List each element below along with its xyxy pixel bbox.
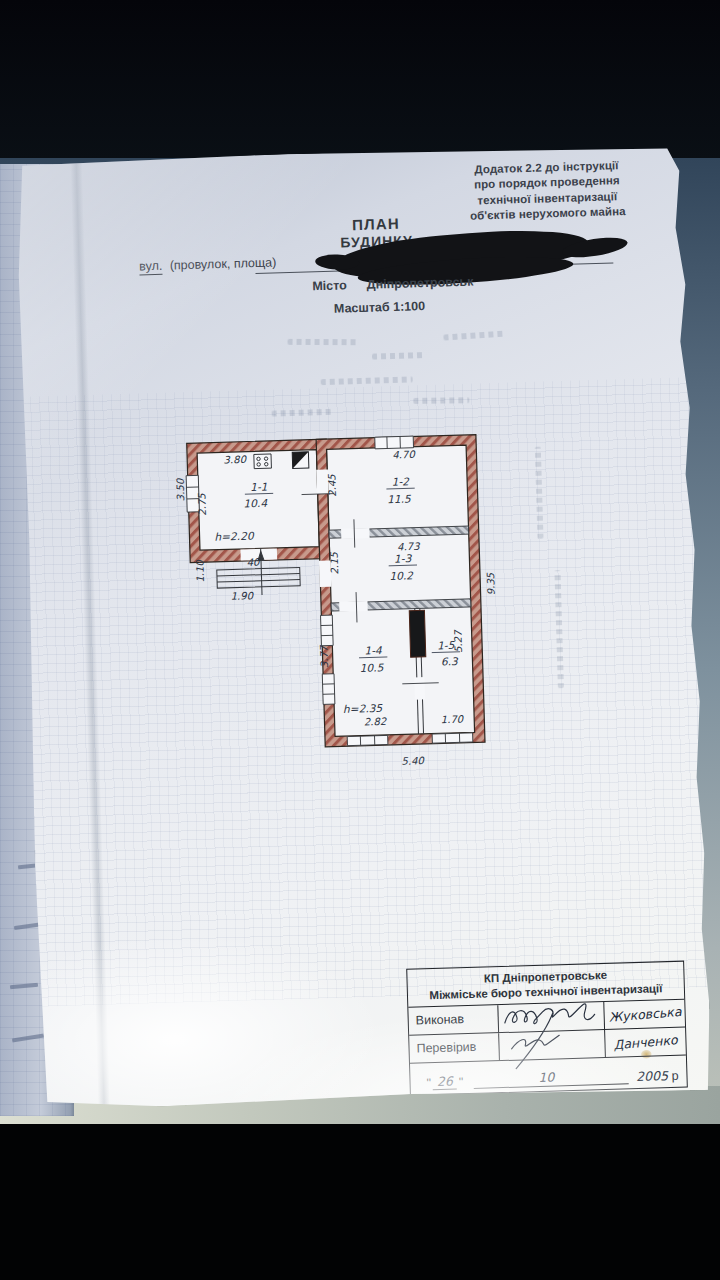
room-1-4-area: 10.5 [359, 661, 384, 675]
street-word: вул. [139, 259, 163, 276]
dim-porch-depth: 1.10 [194, 558, 206, 582]
room-1-3-area: 10.2 [389, 569, 414, 583]
quote-mark: " [459, 1076, 464, 1090]
appendix-note: Додаток 2.2 до інструкції про порядок пр… [442, 157, 652, 225]
dim-wing-left-outer: 3.50 [175, 477, 187, 501]
background-top-dark [0, 0, 720, 160]
dim-lower-ceiling-height: h=2.35 [343, 702, 384, 716]
date-year: 2005 р [636, 1068, 679, 1084]
bleed-through-mark [554, 570, 563, 688]
room-1-2-number: 1-2 [392, 475, 411, 489]
dim-room5-bottom: 1.70 [441, 713, 465, 725]
dim-porch-width: 1.90 [230, 590, 254, 602]
document-sheet: Додаток 2.2 до інструкції про порядок пр… [14, 142, 712, 1109]
room-1-1-number: 1-1 [250, 481, 268, 495]
room-1-4-number: 1-4 [364, 644, 382, 658]
checked-name-cell: Данченко [605, 1028, 686, 1057]
bleed-through-mark [321, 376, 413, 385]
city-row: Місто Дніпропетровськ [278, 274, 508, 295]
dim-bottom-total: 5.40 [401, 755, 425, 767]
bleed-through-mark [372, 352, 424, 360]
dim-porch-step: 40 [246, 557, 261, 568]
bleed-through-mark [272, 409, 332, 417]
room-1-3-number: 1-3 [394, 552, 413, 566]
room-1-2-area: 11.5 [387, 492, 412, 506]
executed-label: Виконав [408, 1005, 499, 1035]
dim-room2-top: 4.70 [392, 449, 416, 461]
bleed-through-mark [413, 397, 469, 404]
vent-icon [292, 452, 309, 469]
inventory-stamp-table: КП Дніпропетровське Міжміське бюро техні… [406, 961, 688, 1097]
photographed-floor-plan-document: Додаток 2.2 до інструкції про порядок пр… [0, 0, 720, 1280]
dim-room3-left: 2.15 [329, 551, 341, 574]
street-hint: (провулок, площа) [170, 255, 277, 272]
bleed-through-mark [535, 447, 544, 539]
room-1-1-area: 10.4 [243, 497, 267, 511]
dim-room2-left: 2.45 [326, 474, 338, 497]
bleed-through-mark [443, 331, 505, 341]
dim-wing-left-inner: 2.75 [196, 493, 208, 516]
date-month: 10 [538, 1070, 554, 1085]
executed-name-cell: Жуковська [604, 1000, 685, 1029]
scale-note: Масштаб 1:100 [314, 298, 444, 316]
room-1-5-area: 6.3 [441, 655, 460, 669]
checked-signature-cell [499, 1030, 606, 1060]
chimney-block [409, 610, 426, 657]
background-bottom-dark [0, 1124, 720, 1280]
dim-wing-top: 3.80 [223, 454, 247, 466]
paper-fold-shadow [70, 160, 110, 1108]
dim-right-total: 9.35 [485, 572, 497, 595]
bleed-through-mark [288, 339, 360, 345]
dim-lower-left: 3.77 [318, 644, 330, 668]
checked-label: Перевірив [409, 1033, 500, 1063]
dim-room3-top: 4.73 [397, 541, 421, 553]
dim-room4-bottom: 2.82 [364, 716, 387, 728]
executed-name: Жуковська [608, 1004, 682, 1025]
dim-wing-ceiling-height: h=2.20 [214, 529, 255, 543]
street-label: вул. (провулок, площа) [139, 255, 276, 273]
stove-icon [254, 454, 272, 469]
checked-name: Данченко [613, 1033, 678, 1053]
floor-plan: 3.80 1-1 10.4 2.75 3.50 h=2.20 40 1.10 1… [172, 419, 526, 779]
quote-mark: " [426, 1077, 431, 1091]
date-month-line: 10 [473, 1057, 629, 1090]
date-day: 26 [433, 1074, 457, 1091]
city-value: Дніпропетровськ [367, 275, 474, 292]
city-label: Місто [312, 278, 347, 293]
room-1-5-number: 1-5 [437, 639, 456, 653]
